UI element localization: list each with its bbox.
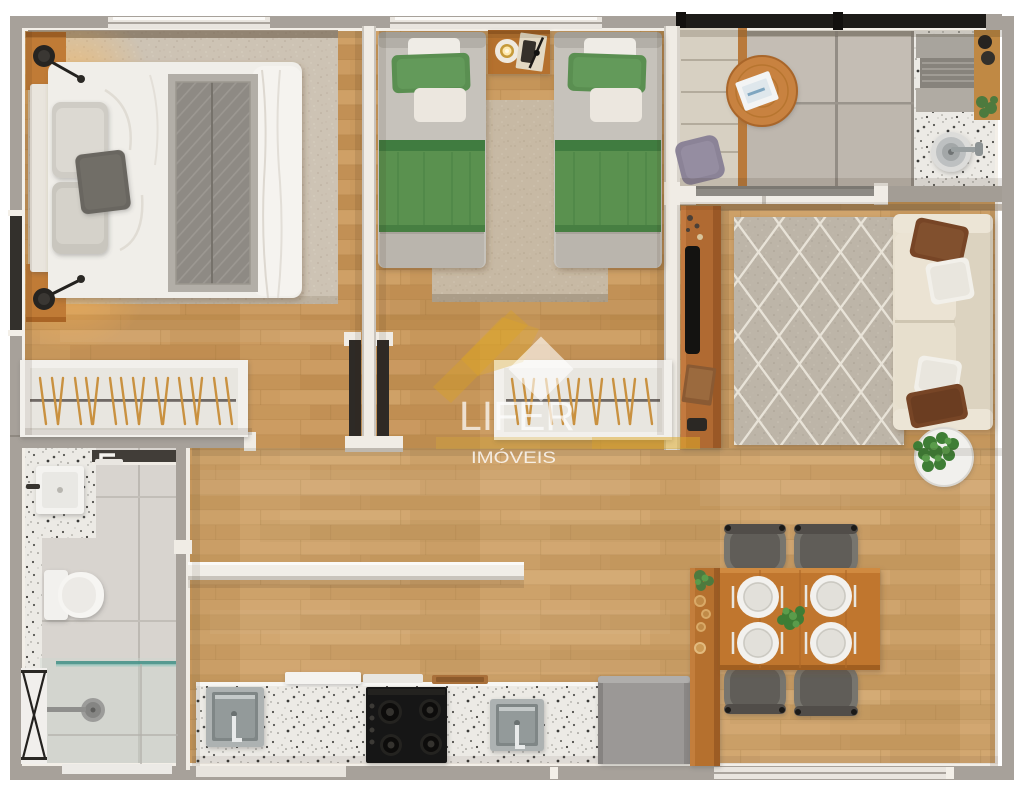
svg-text:IMÓVEIS: IMÓVEIS — [471, 448, 556, 467]
svg-text:LIFER: LIFER — [459, 393, 575, 439]
